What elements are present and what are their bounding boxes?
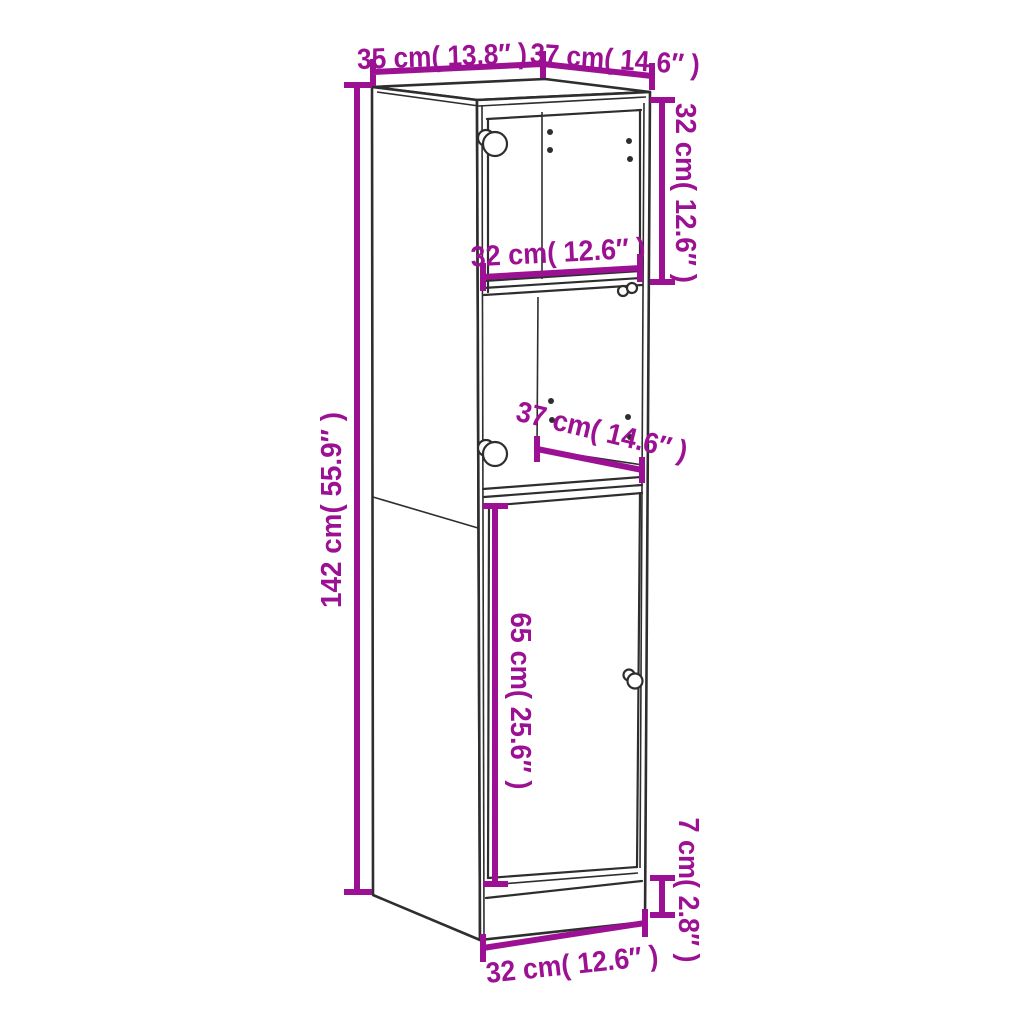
shelf-pin-hole: [626, 138, 632, 144]
dimension-label-bottom-width: 32 cm( 12.6″ ): [484, 940, 659, 990]
middle-door-knob: [483, 442, 507, 466]
dimension-line: [650, 878, 675, 915]
dimension-diagram-canvas: 35 cm( 13.8″ ) 37 cm( 14.6″ ) 142 cm( 55…: [0, 0, 1024, 1024]
dimension-line: [344, 85, 372, 892]
cabinet-dimension-diagram: 35 cm( 13.8″ ) 37 cm( 14.6″ ) 142 cm( 55…: [0, 0, 1024, 1024]
dimension-label-top-depth: 37 cm( 14.6″ ): [529, 38, 701, 82]
lower-door-knob: [628, 674, 643, 689]
dimension-upper-section-height: 32 cm( 12.6″ ): [650, 100, 701, 283]
dimension-top-width: 35 cm( 13.8″ ): [357, 38, 543, 86]
upper-door-knob: [483, 132, 507, 156]
lower-door-left-edge: [488, 506, 489, 878]
shelf-pin-hole: [547, 129, 553, 135]
dimension-label-upper-section-height: 32 cm( 12.6″ ): [669, 103, 701, 283]
cabinet-front-face: [477, 92, 650, 940]
dimension-total-height: 142 cm( 55.9″ ): [316, 85, 372, 892]
dimension-label-plinth-height: 7 cm( 2.8″ ): [672, 818, 704, 963]
dimension-label-door-height: 65 cm( 25.6″ ): [504, 613, 536, 790]
dimension-plinth-height: 7 cm( 2.8″ ): [650, 818, 704, 963]
cabinet-left-side-panel: [372, 87, 480, 940]
shelf-pin-hole: [625, 414, 631, 420]
shelf-pin-hole: [627, 156, 633, 162]
dimension-label-top-width: 35 cm( 13.8″ ): [357, 38, 528, 76]
shelf-dowel: [627, 283, 637, 293]
shelf-pin-hole: [547, 147, 553, 153]
cabinet-drawing: [372, 79, 650, 940]
dimension-label-total-height: 142 cm( 55.9″ ): [316, 412, 348, 608]
